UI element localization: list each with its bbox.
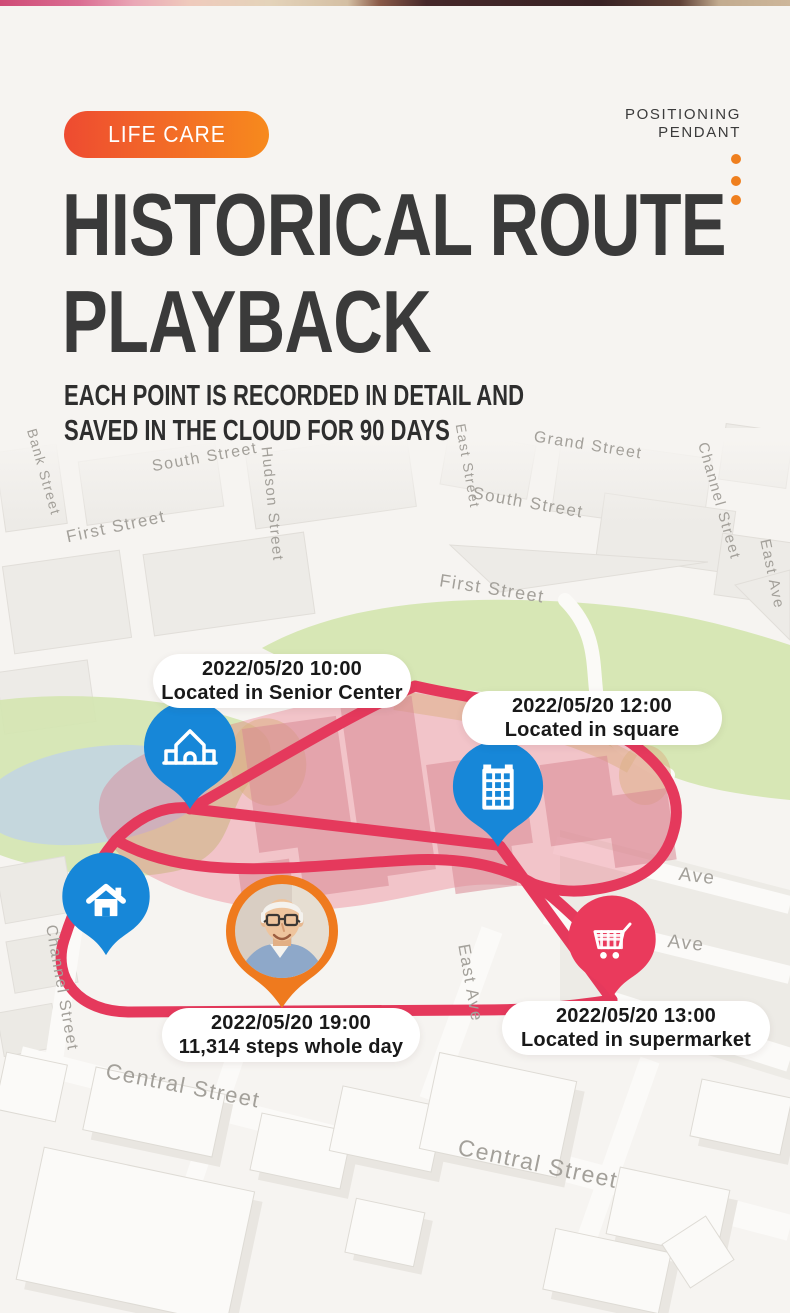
callout-location: Located in square: [462, 718, 722, 742]
callout-senior-center: 2022/05/20 10:00 Located in Senior Cente…: [153, 654, 411, 708]
callout-location: Located in Senior Center: [153, 681, 411, 705]
callout-steps-count: 11,314 steps whole day: [162, 1035, 420, 1059]
person-pin[interactable]: [226, 875, 338, 1008]
callout-time: 2022/05/20 19:00: [162, 1011, 420, 1035]
square-pin[interactable]: [453, 741, 543, 847]
subtitle-line2: SAVED IN THE CLOUD FOR 90 DAYS: [64, 414, 524, 449]
subtitle-line1: EACH POINT IS RECORDED IN DETAIL AND: [64, 379, 524, 414]
accent-dot: [731, 154, 741, 164]
callout-steps: 2022/05/20 19:00 11,314 steps whole day: [162, 1008, 420, 1062]
office-building-icon: [482, 765, 513, 810]
product-name: POSITIONING PENDANT: [625, 106, 741, 142]
callout-time: 2022/05/20 13:00: [502, 1004, 770, 1028]
page-subtitle: EACH POINT IS RECORDED IN DETAIL AND SAV…: [64, 379, 669, 449]
page-title: HISTORICAL ROUTE PLAYBACK: [62, 176, 790, 370]
title-line2: PLAYBACK: [62, 273, 726, 370]
callout-time: 2022/05/20 10:00: [153, 657, 411, 681]
life-care-badge: LIFE CARE: [64, 111, 269, 158]
home-pin[interactable]: [62, 853, 149, 956]
page: South Street Bank Street Hudson Street E…: [0, 0, 790, 1313]
product-name-line2: PENDANT: [625, 124, 741, 142]
senior-center-pin[interactable]: [144, 701, 236, 809]
badge-label: LIFE CARE: [108, 121, 226, 148]
callout-time: 2022/05/20 12:00: [462, 694, 722, 718]
callout-supermarket: 2022/05/20 13:00 Located in supermarket: [502, 1001, 770, 1055]
callout-square: 2022/05/20 12:00 Located in square: [462, 691, 722, 745]
callout-location: Located in supermarket: [502, 1028, 770, 1052]
title-line1: HISTORICAL ROUTE: [62, 176, 726, 273]
top-photo-strip: [0, 0, 790, 6]
supermarket-pin[interactable]: [568, 896, 655, 999]
product-name-line1: POSITIONING: [625, 106, 741, 124]
